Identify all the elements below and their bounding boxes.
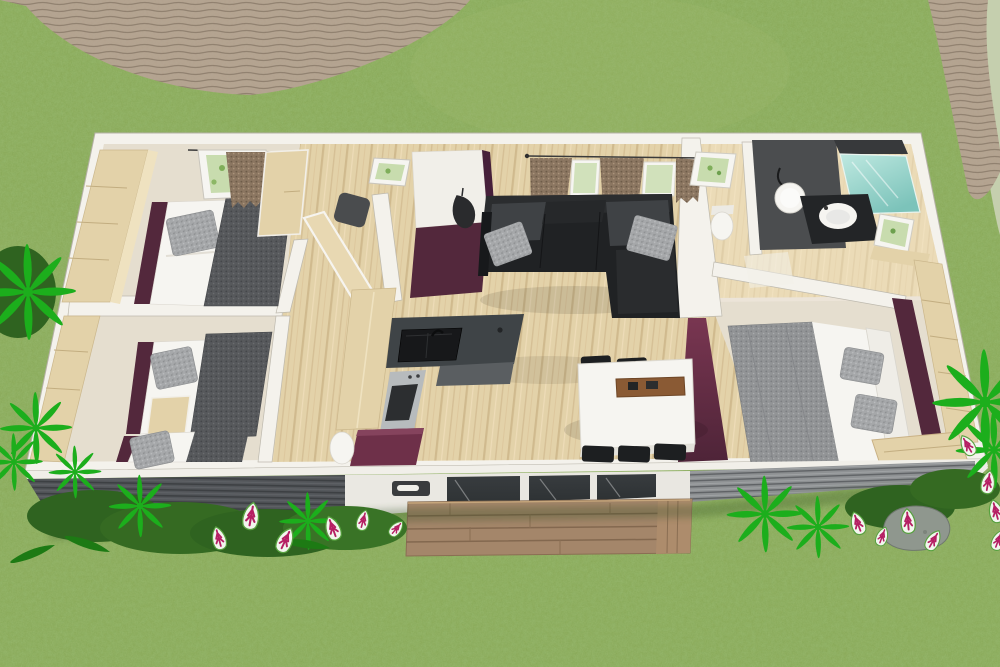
rod-end (525, 154, 529, 158)
bed2-throw (186, 426, 250, 462)
bin (330, 432, 354, 464)
plant-dot (219, 165, 225, 171)
plant-dot (717, 171, 721, 175)
entry-wall-plum (410, 222, 488, 298)
pillow (840, 347, 885, 385)
dining-area (564, 355, 708, 462)
bath-mat (744, 252, 794, 288)
chair (654, 443, 687, 460)
plant-dot (890, 228, 895, 233)
counter-face (436, 362, 514, 386)
floor-plan-render (0, 0, 1000, 667)
glass-pane (529, 475, 590, 502)
lawn-light-patch (410, 0, 790, 145)
oven-knob (408, 375, 412, 379)
entry-wall-upper (412, 150, 488, 228)
chair (582, 445, 615, 462)
mirror-glass (780, 188, 800, 208)
sink (398, 328, 462, 362)
hob-dot (497, 327, 502, 332)
dining-table (578, 359, 695, 449)
back-cushion-mid (542, 200, 606, 224)
picture-leaf (385, 168, 390, 173)
dresser (258, 150, 308, 236)
plant-dot (707, 165, 712, 170)
window1-glass (573, 163, 597, 193)
wc-window-green (697, 157, 729, 183)
glass-pane (597, 474, 656, 500)
rock (884, 506, 950, 550)
window2-glass (645, 165, 673, 193)
tray-item (628, 382, 638, 390)
shower-header (834, 140, 908, 154)
oven-knob (416, 374, 420, 378)
door-handle (397, 485, 419, 491)
tray-item (646, 381, 658, 389)
basin-inner (826, 210, 850, 225)
toilet (711, 212, 733, 240)
floor-plan-scene (0, 0, 1000, 667)
pillow (850, 394, 897, 435)
basin-faucet (824, 206, 828, 210)
chair (618, 445, 651, 462)
plant-dot (211, 179, 216, 184)
rock-speckle (923, 530, 927, 534)
